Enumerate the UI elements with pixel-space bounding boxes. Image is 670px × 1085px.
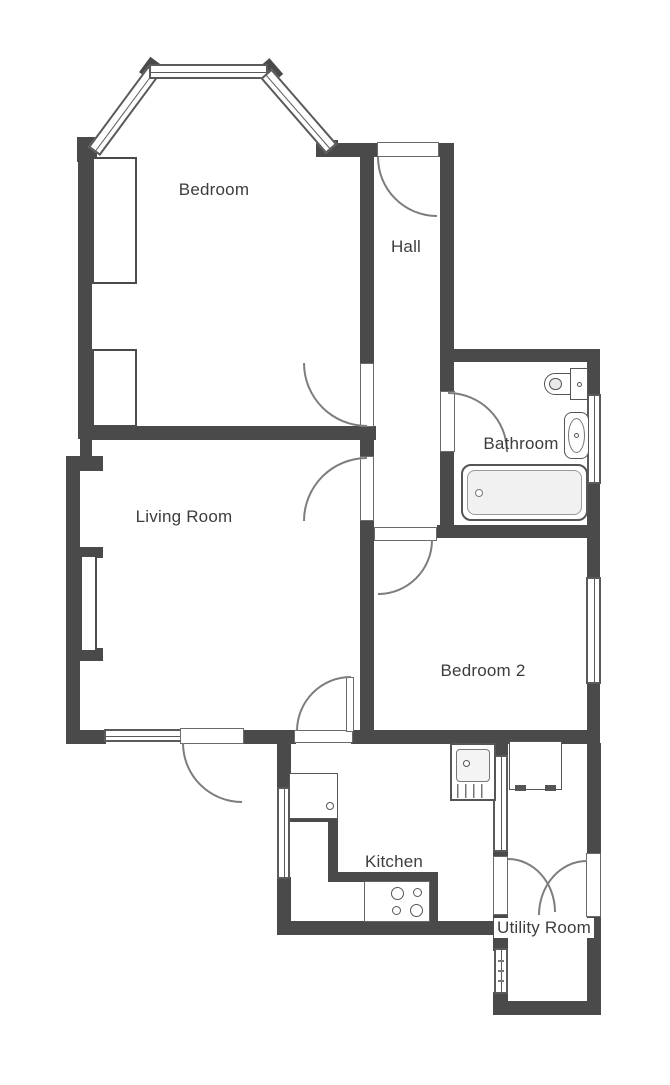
wall-kitchen-bottom <box>277 921 494 935</box>
kitchen-appliance <box>289 773 338 819</box>
utility-inner-door <box>493 856 508 915</box>
kitchen-sink-tap-icon <box>463 760 470 767</box>
living-room-window-icon <box>104 729 182 742</box>
utility-outer-door-swing-icon <box>538 860 587 915</box>
wall-hall-left-lower <box>360 519 374 731</box>
wall-bathroom-right-upper <box>587 361 600 396</box>
room-label-utility-room: Utility Room <box>494 918 594 938</box>
wall-utility-right-upper <box>587 743 601 855</box>
bedroom2-window-icon <box>586 577 601 684</box>
garden-door-swing-icon <box>182 743 242 803</box>
kitchen-door-opening <box>294 730 353 743</box>
floor-plan: Bedroom Hall Bathroom Living Room Bedroo… <box>0 0 670 1085</box>
bathroom-window-icon <box>587 394 601 484</box>
wall-bathroom-left-lower <box>440 451 454 527</box>
room-label-bedroom: Bedroom <box>179 180 249 200</box>
bedroom-door-swing-icon <box>303 363 367 427</box>
toilet-bowl-icon <box>549 378 562 390</box>
basin-drain-icon <box>574 433 579 438</box>
bay-window-left-icon <box>88 66 160 156</box>
wardrobe-2 <box>92 349 137 427</box>
wall-bathroom-top <box>440 349 600 362</box>
bay-window-top-icon <box>149 64 268 79</box>
wall-bedroom-living-divider <box>80 426 376 440</box>
wall-hall-right-upper <box>440 143 454 363</box>
utility-appliance-foot-left <box>515 785 526 791</box>
hob-burner-4-icon <box>410 904 423 917</box>
bay-window-right-icon <box>260 69 337 154</box>
wall-bedroom2-bottom <box>362 730 600 744</box>
room-label-kitchen: Kitchen <box>365 852 423 872</box>
wall-hall-left-upper <box>360 157 374 365</box>
wardrobe-1 <box>92 157 137 284</box>
wall-living-left-main <box>66 456 80 744</box>
room-label-hall: Hall <box>391 237 421 257</box>
garden-door <box>180 728 244 744</box>
wall-bedroom-left <box>78 143 92 439</box>
toilet-flush-icon <box>577 382 582 387</box>
kitchen-sink-bowl-icon <box>456 749 490 782</box>
wall-utility-bottom <box>493 1001 601 1015</box>
utility-appliance-foot-right <box>545 785 556 791</box>
hob-burner-2-icon <box>413 888 422 897</box>
bedroom2-door <box>374 527 437 541</box>
bedroom2-door-swing-icon <box>378 540 433 595</box>
utility-rear-window-icon <box>494 948 508 994</box>
fireplace-recess <box>80 555 97 652</box>
hob-burner-3-icon <box>392 906 401 915</box>
kitchen-door-swing-icon <box>296 676 351 731</box>
entry-door <box>377 142 439 157</box>
wall-bedroom2-right-upper <box>587 538 600 579</box>
bath-drain-icon <box>475 489 483 497</box>
wall-bathroom-bottom <box>437 525 600 538</box>
bath-inner-icon <box>467 470 582 515</box>
entry-door-swing-icon <box>377 157 437 217</box>
utility-outer-door <box>586 853 601 917</box>
wall-bathroom-left-upper <box>440 361 454 394</box>
wall-living-bottom-left <box>66 730 106 744</box>
kitchen-drainer-icon <box>457 784 489 798</box>
room-label-living-room: Living Room <box>136 507 233 527</box>
utility-appliance <box>509 741 562 790</box>
worktop-edge-2 <box>328 813 338 881</box>
kitchen-appliance-knob-icon <box>326 802 334 810</box>
living-room-door-swing-icon <box>303 457 367 521</box>
hob-burner-1-icon <box>391 887 404 900</box>
room-label-bedroom-2: Bedroom 2 <box>441 661 526 681</box>
room-label-bathroom: Bathroom <box>483 434 558 454</box>
